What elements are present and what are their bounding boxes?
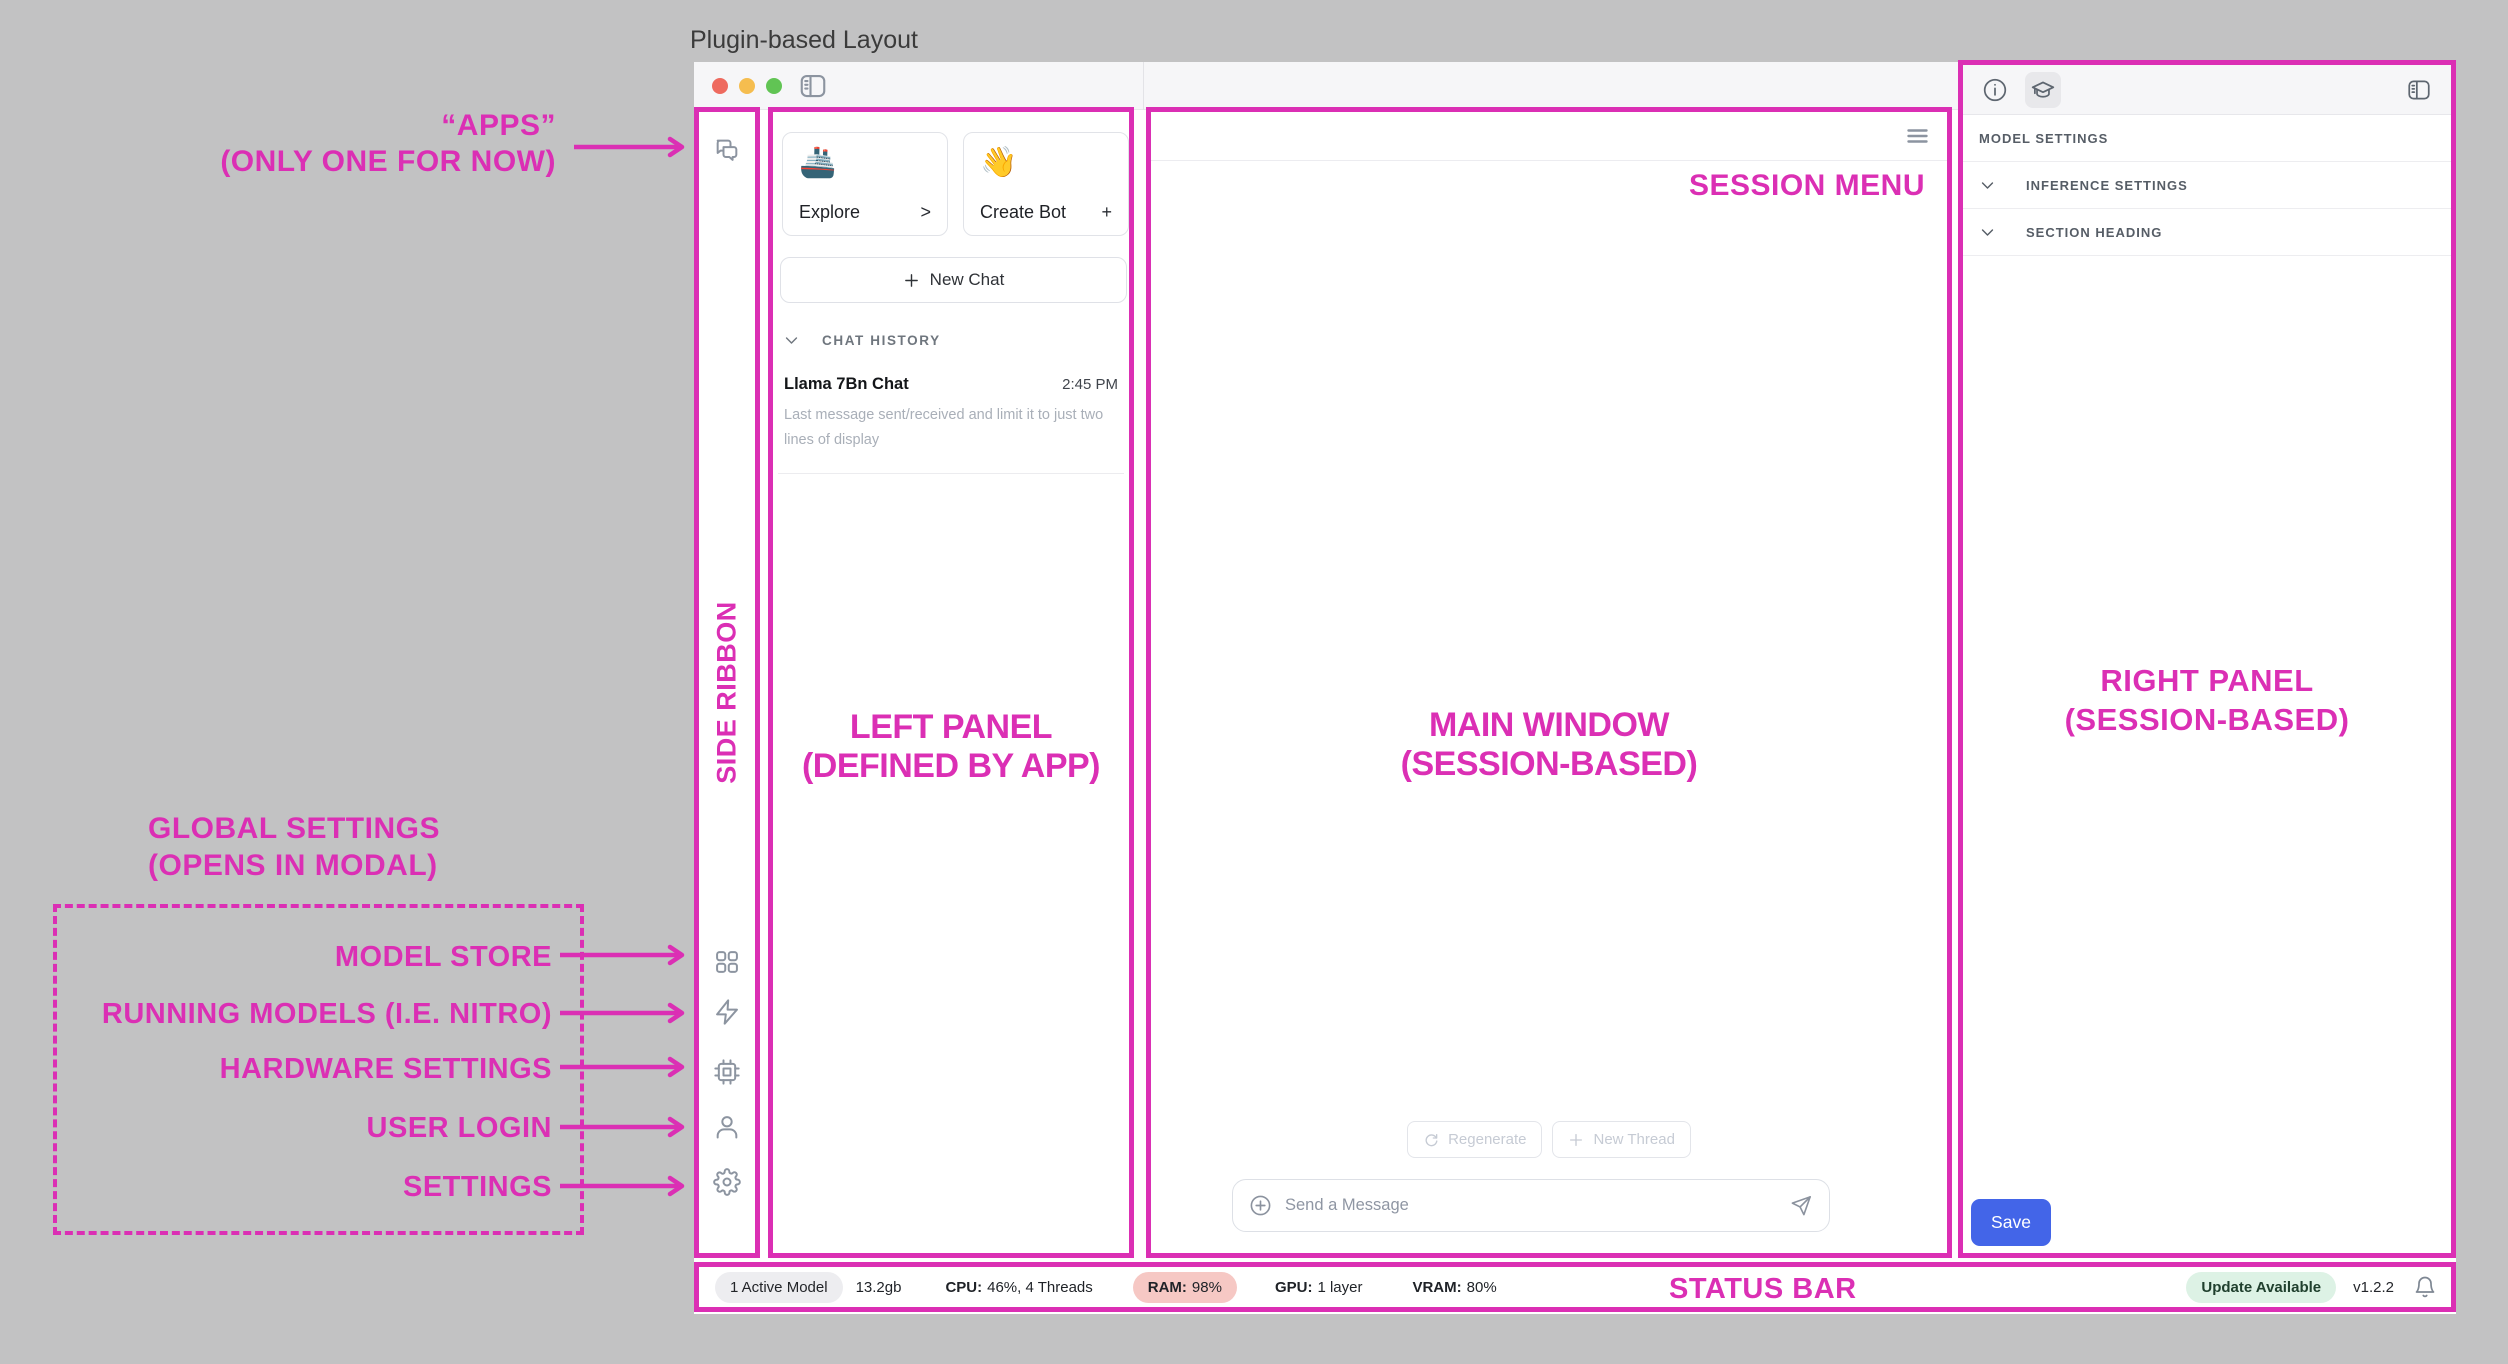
new-chat-label: New Chat bbox=[930, 270, 1005, 290]
annotation-arrow bbox=[560, 1056, 690, 1078]
main-window-annotation: MAIN WINDOW (SESSION-BASED) bbox=[1151, 706, 1947, 784]
annotation-arrow bbox=[560, 944, 690, 966]
plus-icon bbox=[903, 272, 920, 289]
create-bot-plus: + bbox=[1101, 202, 1112, 223]
vram-usage: VRAM:80% bbox=[1412, 1279, 1496, 1296]
send-icon[interactable] bbox=[1790, 1194, 1813, 1217]
running-models-icon[interactable] bbox=[713, 998, 741, 1026]
hardware-settings-annotation: HARDWARE SETTINGS bbox=[220, 1053, 552, 1086]
user-login-annotation: USER LOGIN bbox=[367, 1112, 552, 1145]
regenerate-button[interactable]: Regenerate bbox=[1407, 1121, 1542, 1158]
gpu-usage: GPU:1 layer bbox=[1275, 1279, 1363, 1296]
titlebar-divider bbox=[1143, 62, 1144, 110]
info-icon[interactable] bbox=[1977, 72, 2013, 108]
annotation-arrow bbox=[560, 1002, 690, 1024]
chevron-down-icon bbox=[1979, 224, 1996, 241]
new-thread-button[interactable]: New Thread bbox=[1552, 1121, 1690, 1158]
model-settings-tab-icon[interactable] bbox=[2025, 72, 2061, 108]
left-sidebar-toggle-icon[interactable] bbox=[796, 71, 830, 101]
attach-plus-icon[interactable] bbox=[1249, 1194, 1272, 1217]
right-sidebar-toggle-icon[interactable] bbox=[2401, 72, 2437, 108]
zoom-window-button[interactable] bbox=[766, 78, 782, 94]
session-menu-icon[interactable] bbox=[1904, 124, 1931, 148]
model-settings-heading: MODEL SETTINGS bbox=[1963, 115, 2451, 162]
save-button[interactable]: Save bbox=[1971, 1199, 2051, 1246]
ship-emoji: 🚢 bbox=[799, 147, 931, 179]
status-bar-annotation: STATUS BAR bbox=[1669, 1273, 1857, 1306]
message-input[interactable] bbox=[1285, 1196, 1777, 1215]
app-cards: 🚢 Explore > 👋 Create Bot + bbox=[782, 132, 1129, 236]
create-bot-card[interactable]: 👋 Create Bot + bbox=[963, 132, 1129, 236]
global-settings-annotation: GLOBAL SETTINGS (OPENS IN MODAL) bbox=[148, 810, 440, 884]
notifications-bell-icon[interactable] bbox=[2413, 1275, 2437, 1299]
create-bot-card-label: Create Bot bbox=[980, 202, 1066, 223]
user-login-icon[interactable] bbox=[713, 1113, 741, 1141]
chat-history-header[interactable]: CHAT HISTORY bbox=[783, 332, 941, 349]
close-window-button[interactable] bbox=[712, 78, 728, 94]
status-bar: 1 Active Model 13.2gb CPU:46%, 4 Threads… bbox=[694, 1262, 2456, 1312]
wave-emoji: 👋 bbox=[980, 147, 1112, 179]
apps-annotation: “APPS” (ONLY ONE FOR NOW) bbox=[220, 108, 556, 180]
annotation-arrow bbox=[560, 1175, 690, 1197]
chevron-down-icon bbox=[783, 332, 800, 349]
cpu-usage: CPU:46%, 4 Threads bbox=[945, 1279, 1092, 1296]
left-panel-annotation: LEFT PANEL (DEFINED BY APP) bbox=[773, 708, 1129, 786]
new-chat-button[interactable]: New Chat bbox=[780, 257, 1127, 303]
apps-chat-icon[interactable] bbox=[713, 136, 741, 164]
running-models-annotation: RUNNING MODELS (I.E. NITRO) bbox=[102, 998, 552, 1031]
side-ribbon: SIDE RIBBON 👋 bbox=[694, 107, 760, 1258]
app-version: v1.2.2 bbox=[2353, 1279, 2394, 1296]
left-panel: 🚢 Explore > 👋 Create Bot + New Chat CHAT… bbox=[768, 107, 1134, 1258]
minimize-window-button[interactable] bbox=[739, 78, 755, 94]
chat-item-preview: Last message sent/received and limit it … bbox=[784, 403, 1114, 453]
refresh-icon bbox=[1423, 1132, 1439, 1148]
app-window: SIDE RIBBON 👋 🚢 Explore > bbox=[694, 62, 2456, 1314]
side-ribbon-annotation: SIDE RIBBON bbox=[712, 601, 743, 784]
chevron-down-icon bbox=[1979, 177, 1996, 194]
ram-usage-badge: RAM:98% bbox=[1133, 1272, 1237, 1303]
explore-chevron: > bbox=[920, 202, 931, 223]
graduation-cap-icon bbox=[2030, 77, 2056, 103]
chat-item-time: 2:45 PM bbox=[1062, 376, 1118, 393]
plus-icon bbox=[1568, 1132, 1584, 1148]
chat-item-title: Llama 7Bn Chat bbox=[784, 375, 909, 394]
right-panel: MODEL SETTINGS INFERENCE SETTINGS SECTIO… bbox=[1958, 60, 2456, 1258]
main-window-header bbox=[1151, 112, 1947, 161]
chat-history-label: CHAT HISTORY bbox=[822, 333, 941, 348]
page-title: Plugin-based Layout bbox=[690, 26, 918, 55]
inference-settings-section[interactable]: INFERENCE SETTINGS bbox=[1963, 162, 2451, 209]
hardware-settings-icon[interactable] bbox=[713, 1058, 741, 1086]
model-store-icon[interactable] bbox=[713, 948, 741, 976]
traffic-lights bbox=[712, 78, 782, 94]
message-bar bbox=[1232, 1179, 1830, 1232]
active-model-badge: 1 Active Model bbox=[715, 1272, 843, 1303]
explore-card-label: Explore bbox=[799, 202, 860, 223]
right-panel-header bbox=[1963, 65, 2451, 115]
settings-annotation: SETTINGS bbox=[403, 1171, 552, 1204]
right-panel-annotation: RIGHT PANEL (SESSION-BASED) bbox=[1963, 661, 2451, 739]
chat-history-item[interactable]: Llama 7Bn Chat 2:45 PM Last message sent… bbox=[778, 367, 1124, 474]
status-right: Update Available v1.2.2 bbox=[2186, 1267, 2437, 1307]
session-menu-annotation: SESSION MENU bbox=[1689, 169, 1925, 203]
memory-usage: 13.2gb bbox=[856, 1279, 902, 1296]
thread-actions: Regenerate New Thread bbox=[1151, 1121, 1947, 1158]
main-window: SESSION MENU MAIN WINDOW (SESSION-BASED)… bbox=[1146, 107, 1952, 1258]
update-available-badge[interactable]: Update Available bbox=[2186, 1272, 2336, 1303]
annotation-arrow bbox=[560, 1116, 690, 1138]
section-heading-section[interactable]: SECTION HEADING bbox=[1963, 209, 2451, 256]
model-store-annotation: MODEL STORE bbox=[335, 941, 552, 974]
explore-card[interactable]: 🚢 Explore > bbox=[782, 132, 948, 236]
settings-gear-icon[interactable] bbox=[713, 1168, 741, 1196]
annotation-arrow bbox=[574, 136, 690, 158]
status-metrics: 1 Active Model 13.2gb CPU:46%, 4 Threads… bbox=[715, 1267, 1497, 1307]
